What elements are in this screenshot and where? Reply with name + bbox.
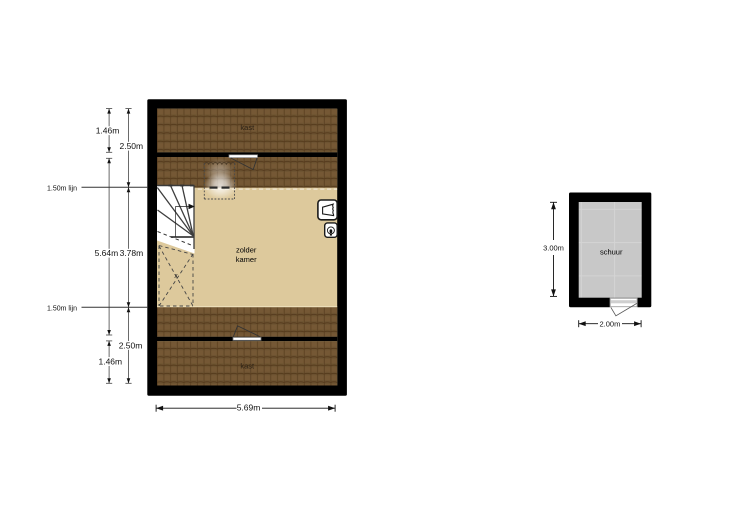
- svg-text:3.00m: 3.00m: [543, 244, 564, 253]
- svg-text:1.50m lijn: 1.50m lijn: [47, 305, 77, 312]
- svg-text:kast: kast: [240, 361, 255, 370]
- svg-text:kamer: kamer: [236, 255, 257, 264]
- svg-text:kast: kast: [240, 123, 255, 132]
- svg-text:3.78m: 3.78m: [120, 248, 144, 258]
- svg-text:1.46m: 1.46m: [96, 126, 120, 136]
- svg-text:2.50m: 2.50m: [119, 340, 143, 350]
- svg-text:5.69m: 5.69m: [237, 403, 261, 413]
- svg-text:1.46m: 1.46m: [98, 357, 122, 367]
- svg-text:5.64m: 5.64m: [95, 248, 119, 258]
- svg-text:1.50m lijn: 1.50m lijn: [47, 185, 77, 192]
- svg-text:zolder: zolder: [236, 245, 257, 254]
- svg-text:2.00m: 2.00m: [599, 319, 620, 328]
- svg-text:x: x: [174, 273, 178, 280]
- svg-text:2.50m: 2.50m: [119, 141, 143, 151]
- svg-text:schuur: schuur: [600, 248, 623, 257]
